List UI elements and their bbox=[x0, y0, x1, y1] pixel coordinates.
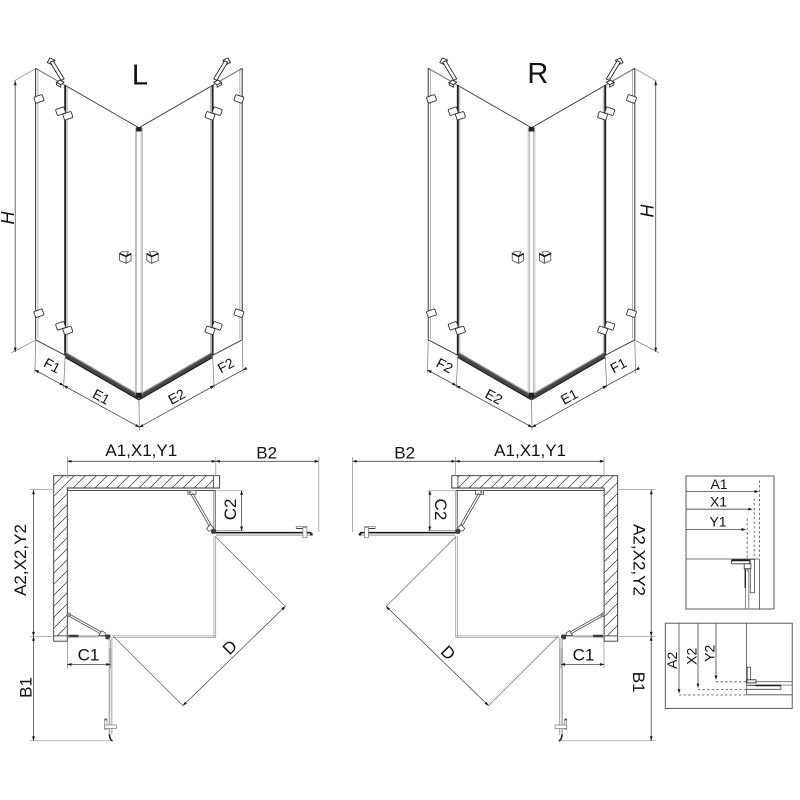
svg-text:B1: B1 bbox=[17, 677, 36, 698]
svg-text:X1: X1 bbox=[710, 494, 727, 510]
svg-text:A1,X1,Y1: A1,X1,Y1 bbox=[105, 441, 177, 460]
svg-text:C1: C1 bbox=[573, 646, 595, 665]
svg-text:C2: C2 bbox=[431, 499, 450, 521]
svg-text:A2,X2,Y2: A2,X2,Y2 bbox=[11, 524, 30, 596]
svg-text:A1,X1,Y1: A1,X1,Y1 bbox=[494, 441, 566, 460]
svg-text:A2: A2 bbox=[664, 652, 680, 669]
svg-text:X2: X2 bbox=[684, 648, 700, 665]
svg-text:A1: A1 bbox=[710, 476, 727, 492]
svg-text:B1: B1 bbox=[629, 672, 648, 693]
svg-text:Y2: Y2 bbox=[702, 645, 718, 662]
svg-text:B2: B2 bbox=[394, 444, 415, 463]
svg-text:L: L bbox=[132, 60, 148, 92]
svg-text:A2,X2,Y2: A2,X2,Y2 bbox=[629, 524, 648, 596]
svg-text:B2: B2 bbox=[256, 444, 277, 463]
svg-text:Y1: Y1 bbox=[709, 513, 726, 529]
svg-text:R: R bbox=[527, 58, 548, 90]
svg-text:H: H bbox=[0, 211, 18, 225]
svg-text:C1: C1 bbox=[78, 646, 100, 665]
svg-text:C2: C2 bbox=[221, 499, 240, 521]
svg-text:H: H bbox=[638, 204, 658, 218]
